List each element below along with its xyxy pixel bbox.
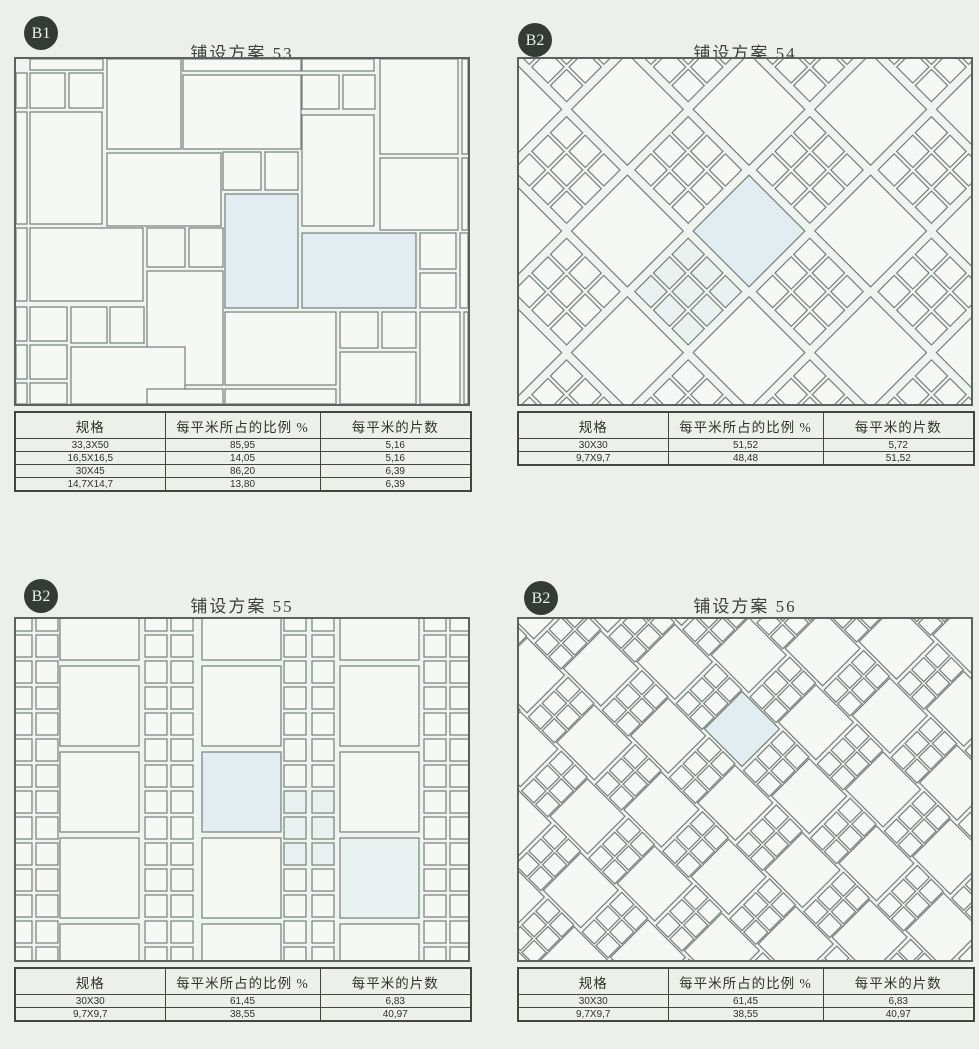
table-row: 16,5X16,5 14,05 5,16 <box>15 452 471 465</box>
cell-ratio: 38,55 <box>668 1008 823 1022</box>
header-spec: 规格 <box>15 412 165 439</box>
cell-ratio: 14,05 <box>165 452 320 465</box>
catalog-page: B1 铺设方案 53 规格 每平米所占的比例 % 每平米的片数 33,3X50 … <box>0 0 979 1049</box>
header-count: 每平米的片数 <box>823 412 974 439</box>
cell-ratio: 48,48 <box>668 452 823 466</box>
cell-ratio: 38,55 <box>165 1008 320 1022</box>
cell-count: 6,39 <box>320 478 471 492</box>
cell-ratio: 61,45 <box>165 995 320 1008</box>
table-header-row: 规格 每平米所占的比例 % 每平米的片数 <box>518 412 974 439</box>
table-row: 9,7X9,7 48,48 51,52 <box>518 452 974 466</box>
spec-table-54: 规格 每平米所占的比例 % 每平米的片数 30X30 51,52 5,72 9,… <box>517 411 975 466</box>
header-spec: 规格 <box>15 968 165 995</box>
panel-title: 铺设方案 56 <box>517 592 973 617</box>
header-count: 每平米的片数 <box>823 968 974 995</box>
spec-table-56: 规格 每平米所占的比例 % 每平米的片数 30X30 61,45 6,83 9,… <box>517 967 975 1022</box>
cell-ratio: 51,52 <box>668 439 823 452</box>
cell-spec: 9,7X9,7 <box>15 1008 165 1022</box>
cell-ratio: 85,95 <box>165 439 320 452</box>
table-row: 30X45 86,20 6,39 <box>15 465 471 478</box>
cell-ratio: 61,45 <box>668 995 823 1008</box>
table-row: 30X30 51,52 5,72 <box>518 439 974 452</box>
cell-spec: 16,5X16,5 <box>15 452 165 465</box>
table-row: 14,7X14,7 13,80 6,39 <box>15 478 471 492</box>
cell-ratio: 13,80 <box>165 478 320 492</box>
header-ratio: 每平米所占的比例 % <box>165 412 320 439</box>
cell-spec: 9,7X9,7 <box>518 452 668 466</box>
tile-pattern-54 <box>517 57 973 406</box>
cell-count: 40,97 <box>320 1008 471 1022</box>
cell-spec: 30X30 <box>15 995 165 1008</box>
header-ratio: 每平米所占的比例 % <box>165 968 320 995</box>
cell-count: 6,83 <box>320 995 471 1008</box>
tile-pattern-53 <box>14 57 470 406</box>
cell-spec: 30X30 <box>518 995 668 1008</box>
header-spec: 规格 <box>518 968 668 995</box>
cell-spec: 14,7X14,7 <box>15 478 165 492</box>
table-header-row: 规格 每平米所占的比例 % 每平米的片数 <box>518 968 974 995</box>
table-row: 9,7X9,7 38,55 40,97 <box>15 1008 471 1022</box>
table-row: 9,7X9,7 38,55 40,97 <box>518 1008 974 1022</box>
header-ratio: 每平米所占的比例 % <box>668 412 823 439</box>
header-count: 每平米的片数 <box>320 412 471 439</box>
table-header-row: 规格 每平米所占的比例 % 每平米的片数 <box>15 412 471 439</box>
cell-count: 6,39 <box>320 465 471 478</box>
cell-spec: 30X45 <box>15 465 165 478</box>
tile-pattern-56 <box>517 617 973 962</box>
cell-count: 40,97 <box>823 1008 974 1022</box>
cell-count: 5,16 <box>320 439 471 452</box>
panel-title: 铺设方案 55 <box>14 592 470 617</box>
header-count: 每平米的片数 <box>320 968 471 995</box>
table-row: 33,3X50 85,95 5,16 <box>15 439 471 452</box>
cell-count: 51,52 <box>823 452 974 466</box>
cell-count: 5,72 <box>823 439 974 452</box>
table-row: 30X30 61,45 6,83 <box>518 995 974 1008</box>
header-spec: 规格 <box>518 412 668 439</box>
cell-count: 6,83 <box>823 995 974 1008</box>
tile-pattern-55 <box>14 617 470 962</box>
cell-spec: 33,3X50 <box>15 439 165 452</box>
spec-table-53: 规格 每平米所占的比例 % 每平米的片数 33,3X50 85,95 5,16 … <box>14 411 472 492</box>
cell-ratio: 86,20 <box>165 465 320 478</box>
cell-count: 5,16 <box>320 452 471 465</box>
spec-table-55: 规格 每平米所占的比例 % 每平米的片数 30X30 61,45 6,83 9,… <box>14 967 472 1022</box>
cell-spec: 9,7X9,7 <box>518 1008 668 1022</box>
header-ratio: 每平米所占的比例 % <box>668 968 823 995</box>
table-header-row: 规格 每平米所占的比例 % 每平米的片数 <box>15 968 471 995</box>
table-row: 30X30 61,45 6,83 <box>15 995 471 1008</box>
cell-spec: 30X30 <box>518 439 668 452</box>
